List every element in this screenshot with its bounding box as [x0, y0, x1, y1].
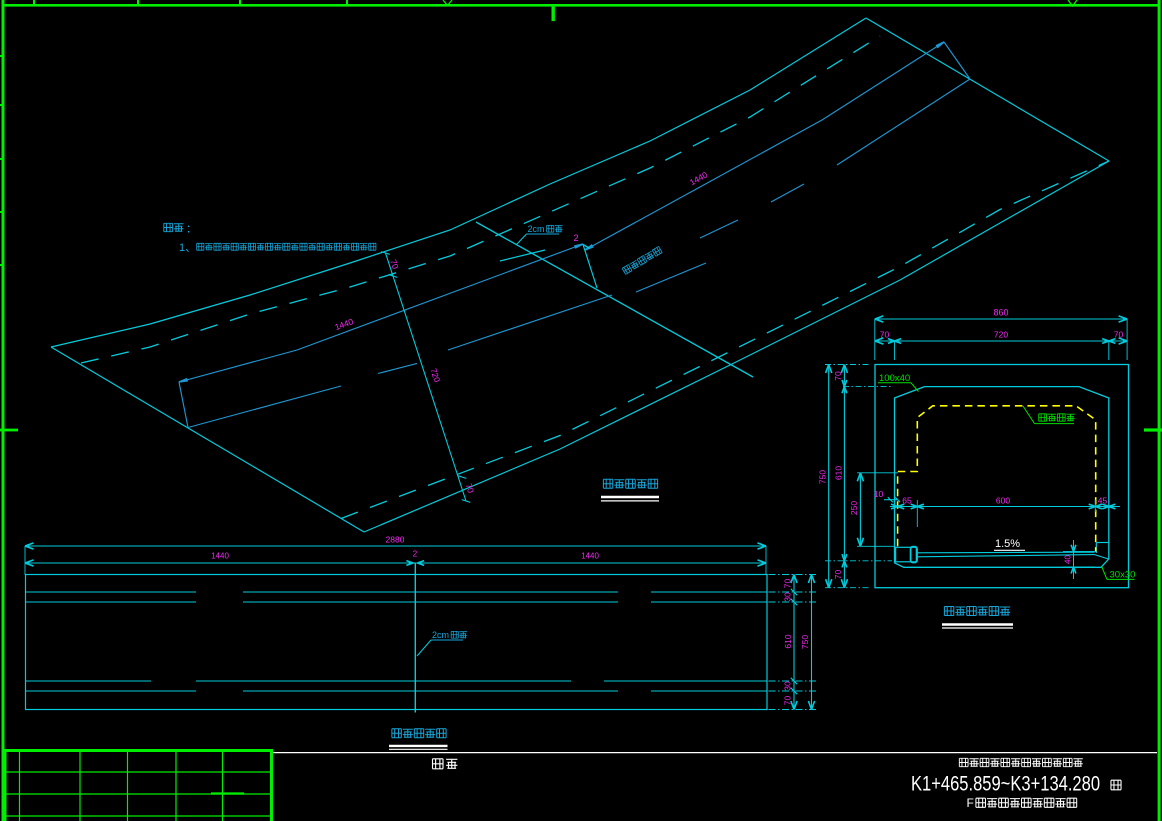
- svg-text:2: 2: [413, 550, 418, 559]
- svg-text:1、: 1、: [179, 242, 196, 254]
- svg-text:70: 70: [783, 579, 793, 589]
- svg-text:45: 45: [1098, 496, 1108, 506]
- svg-text:720: 720: [994, 330, 1008, 340]
- svg-text:100x40: 100x40: [879, 373, 910, 384]
- svg-text:30: 30: [783, 681, 793, 691]
- svg-text:1.5%: 1.5%: [995, 538, 1020, 550]
- svg-text:1440: 1440: [581, 552, 599, 561]
- svg-text:30: 30: [783, 592, 793, 602]
- svg-text:750: 750: [818, 470, 828, 484]
- svg-text:F: F: [967, 796, 974, 810]
- svg-text:70: 70: [833, 371, 843, 381]
- svg-text:70: 70: [880, 330, 890, 340]
- svg-text:70: 70: [783, 696, 793, 706]
- svg-text:30x30: 30x30: [1110, 569, 1136, 580]
- svg-text:2cm: 2cm: [432, 630, 449, 640]
- svg-text:：: ：: [186, 223, 197, 235]
- svg-text:K1+465.859~K3+134.280: K1+465.859~K3+134.280: [911, 773, 1100, 797]
- svg-text:70: 70: [1114, 330, 1124, 340]
- svg-text:610: 610: [834, 466, 844, 480]
- svg-text:2880: 2880: [386, 535, 405, 545]
- svg-text:250: 250: [849, 501, 859, 515]
- svg-text:1440: 1440: [211, 552, 229, 561]
- svg-text:10: 10: [874, 489, 884, 499]
- svg-text:860: 860: [993, 308, 1008, 318]
- svg-text:750: 750: [800, 635, 810, 649]
- svg-text:610: 610: [783, 634, 793, 648]
- svg-text:2: 2: [573, 233, 578, 243]
- svg-text:2cm: 2cm: [528, 224, 545, 234]
- svg-text:600: 600: [996, 496, 1010, 506]
- svg-text:40: 40: [1064, 555, 1073, 564]
- svg-text:65: 65: [902, 496, 912, 506]
- svg-text:70: 70: [833, 570, 843, 580]
